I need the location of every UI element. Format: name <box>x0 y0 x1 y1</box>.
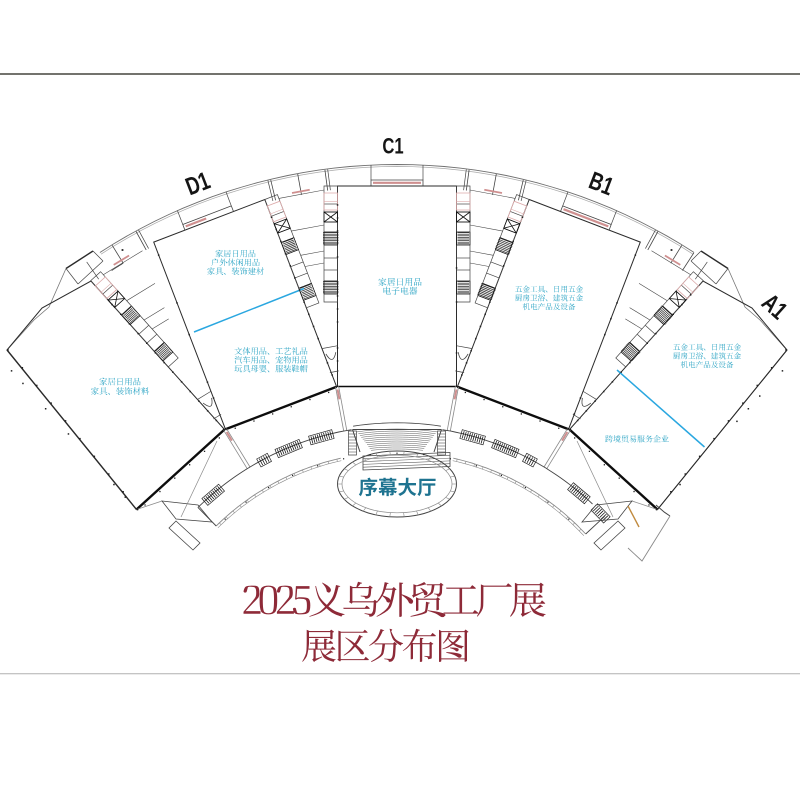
svg-text:C1: C1 <box>382 134 403 159</box>
